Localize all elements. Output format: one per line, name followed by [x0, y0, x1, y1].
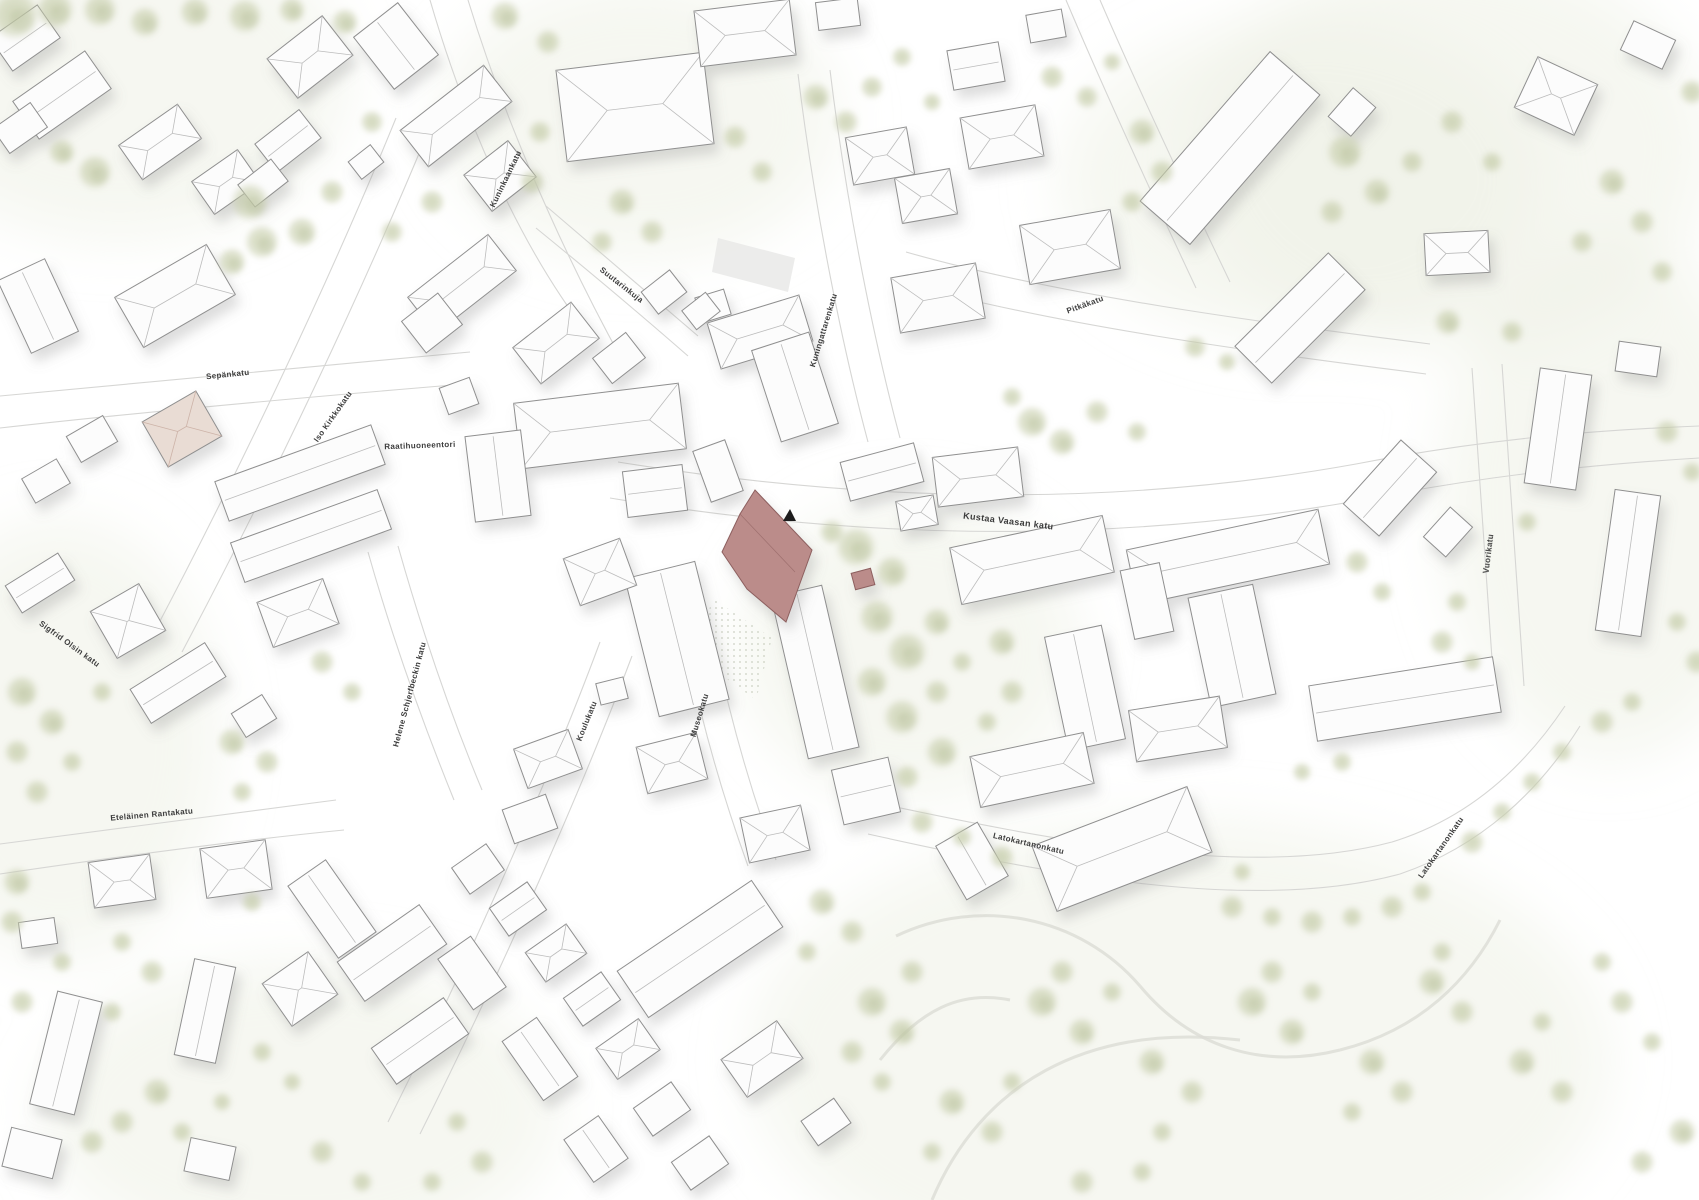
- tree: [1449, 999, 1475, 1025]
- tree: [1446, 591, 1468, 613]
- tree: [922, 92, 942, 112]
- tree-shade: [229, 738, 243, 752]
- tree: [894, 764, 920, 790]
- tree: [1500, 320, 1524, 344]
- building: [831, 757, 900, 825]
- tree: [1439, 109, 1465, 135]
- tree: [1654, 419, 1680, 445]
- tree: [1666, 611, 1688, 633]
- tree: [1049, 959, 1075, 985]
- tree: [1126, 421, 1148, 443]
- building: [932, 447, 1023, 507]
- tree: [0, 909, 25, 935]
- tree-shade: [1679, 1128, 1693, 1142]
- site-plan-map: SepänkatuIso KirkkokatuRaatihuoneentoriK…: [0, 0, 1699, 1200]
- tree-shade: [1519, 1058, 1533, 1072]
- building: [896, 495, 939, 531]
- tree: [231, 781, 253, 803]
- tree: [976, 711, 998, 733]
- tree: [860, 75, 884, 99]
- tree: [309, 1139, 335, 1165]
- tree: [1389, 1079, 1415, 1105]
- tree-shade: [96, 6, 112, 22]
- tree: [1491, 801, 1513, 823]
- tree: [519, 169, 545, 195]
- tree: [380, 220, 404, 244]
- tree: [1219, 894, 1245, 920]
- tree-shade: [246, 197, 264, 215]
- tree-shade: [934, 618, 948, 632]
- tree: [590, 230, 614, 254]
- tree-shade: [289, 7, 302, 20]
- tree: [1589, 709, 1615, 735]
- tree-shade: [342, 19, 355, 32]
- tree: [1261, 906, 1283, 928]
- tree: [1149, 159, 1175, 185]
- tree: [1102, 52, 1122, 72]
- building: [1026, 9, 1066, 43]
- tree: [839, 919, 865, 945]
- building-footprint: [1615, 341, 1661, 377]
- building: [556, 52, 714, 161]
- tree: [1379, 894, 1405, 920]
- tree: [139, 959, 165, 985]
- tree: [1301, 981, 1323, 1003]
- building: [200, 840, 272, 899]
- tree: [839, 1039, 865, 1065]
- tree: [1481, 151, 1503, 173]
- tree: [924, 679, 950, 705]
- tree: [9, 989, 35, 1015]
- tree: [1319, 199, 1345, 225]
- tree: [1341, 906, 1363, 928]
- tree-shade: [1079, 1028, 1093, 1042]
- tree-shade: [898, 712, 915, 729]
- tree: [212, 1092, 232, 1112]
- tree: [750, 160, 774, 184]
- tree-shade: [1429, 978, 1443, 992]
- tree: [871, 1071, 893, 1093]
- tree: [639, 219, 665, 245]
- tree: [1331, 751, 1353, 773]
- tree: [1459, 829, 1485, 855]
- tree: [1120, 190, 1144, 214]
- tree: [61, 751, 83, 773]
- tree: [528, 120, 552, 144]
- tree: [241, 891, 263, 913]
- tree: [79, 1129, 105, 1155]
- tree: [891, 46, 913, 68]
- tree-shade: [229, 258, 243, 272]
- tree: [1591, 951, 1613, 973]
- tree: [1531, 1011, 1553, 1033]
- site-plan-svg: SepänkatuIso KirkkokatuRaatihuoneentoriK…: [0, 0, 1699, 1200]
- tree-shade: [1039, 998, 1054, 1013]
- tree: [899, 959, 925, 985]
- tree-shade: [1289, 1028, 1303, 1042]
- tree: [1151, 1121, 1173, 1143]
- tree: [469, 1149, 495, 1175]
- tree-shade: [49, 718, 63, 732]
- tree: [1131, 1161, 1153, 1183]
- tree: [309, 649, 335, 675]
- tree-shade: [873, 612, 890, 629]
- tree: [833, 109, 859, 135]
- tree: [999, 679, 1025, 705]
- tree-shade: [1249, 998, 1264, 1013]
- building-footprint: [815, 0, 860, 30]
- tree-shade: [889, 568, 904, 583]
- tree: [1400, 150, 1424, 174]
- tree: [1341, 1101, 1363, 1123]
- tree-shade: [869, 678, 884, 693]
- tree: [51, 951, 73, 973]
- tree: [4, 739, 30, 765]
- tree: [1641, 1031, 1663, 1053]
- tree: [360, 110, 384, 134]
- tree-shade: [1029, 418, 1044, 433]
- tree: [419, 189, 445, 215]
- tree-shade: [949, 1098, 963, 1112]
- tree: [446, 1111, 468, 1133]
- tree: [1429, 629, 1455, 655]
- tree: [1621, 691, 1643, 713]
- tree: [1292, 762, 1312, 782]
- tree: [1259, 959, 1285, 985]
- tree: [989, 844, 1015, 870]
- tree: [979, 1119, 1005, 1145]
- building: [894, 168, 957, 223]
- tree-shade: [192, 8, 206, 22]
- building: [694, 0, 796, 67]
- tree: [254, 749, 280, 775]
- tree: [722, 124, 748, 150]
- tree-shade: [619, 198, 633, 212]
- tree: [819, 519, 845, 545]
- tree-shade: [1369, 1058, 1383, 1072]
- tree: [341, 681, 363, 703]
- tree: [1001, 386, 1023, 408]
- tree: [1629, 1149, 1655, 1175]
- tree-shade: [241, 12, 257, 28]
- tree: [1411, 881, 1433, 903]
- tree-shade: [51, 5, 69, 23]
- tree: [1650, 260, 1674, 284]
- tree-shade: [903, 647, 922, 666]
- tree-shade: [899, 1028, 913, 1042]
- tree-shade: [91, 168, 107, 184]
- tree: [1570, 230, 1594, 254]
- tree-shade: [1445, 319, 1458, 332]
- building: [1424, 230, 1490, 275]
- tree: [1609, 989, 1635, 1015]
- tree-shade: [154, 1088, 168, 1102]
- tree: [951, 826, 973, 848]
- tree: [1075, 85, 1099, 109]
- building-footprint: [1026, 9, 1066, 43]
- tree: [1183, 335, 1207, 359]
- tree-shade: [14, 878, 28, 892]
- tree: [91, 681, 113, 703]
- building: [88, 854, 156, 908]
- tree-shade: [819, 898, 833, 912]
- tree: [1039, 64, 1065, 90]
- tree-shade: [1059, 438, 1073, 452]
- tree: [1084, 399, 1110, 425]
- tree-shade: [999, 638, 1013, 652]
- tree: [1629, 209, 1655, 235]
- tree: [1371, 581, 1393, 603]
- tree: [24, 779, 50, 805]
- tree: [1462, 652, 1482, 672]
- tree: [1551, 741, 1573, 763]
- tree-shade: [299, 228, 313, 242]
- tree-shade: [1139, 128, 1153, 142]
- building: [947, 42, 1005, 90]
- tree-shade: [19, 688, 34, 703]
- tree-shade: [502, 12, 516, 26]
- tree-shade: [939, 748, 954, 763]
- tree-shade: [869, 998, 884, 1013]
- tree: [1299, 909, 1325, 935]
- tree: [1344, 549, 1370, 575]
- tree: [1232, 862, 1252, 882]
- tree-shade: [258, 238, 274, 254]
- tree-shade: [59, 149, 72, 162]
- building: [1615, 341, 1661, 377]
- tree: [1431, 941, 1453, 963]
- tree: [1516, 511, 1538, 533]
- tree-shade: [1374, 188, 1388, 202]
- tree: [921, 1141, 943, 1163]
- tree: [109, 1109, 135, 1135]
- tree: [319, 179, 345, 205]
- tree: [1549, 1079, 1575, 1105]
- tree: [1179, 1079, 1205, 1105]
- tree: [101, 1001, 123, 1023]
- tree: [1001, 1071, 1023, 1093]
- building: [622, 465, 687, 518]
- building: [465, 430, 531, 522]
- tree-shade: [1341, 147, 1358, 164]
- tree-shade: [142, 18, 156, 32]
- tree-shade: [10, 9, 33, 32]
- tree: [796, 941, 818, 963]
- tree: [1101, 981, 1123, 1003]
- tree-shade: [852, 542, 871, 561]
- tree: [351, 1171, 373, 1193]
- tree-shade: [1149, 1058, 1163, 1072]
- tree: [251, 1041, 273, 1063]
- tree: [111, 931, 133, 953]
- tree: [1521, 771, 1543, 793]
- tree-shade: [1609, 178, 1623, 192]
- tree: [282, 1072, 302, 1092]
- building: [815, 0, 860, 30]
- tree: [535, 29, 561, 55]
- tree: [1069, 1169, 1095, 1195]
- tree-shade: [813, 93, 827, 107]
- tree: [909, 809, 935, 835]
- tree: [421, 1171, 443, 1193]
- tree: [951, 651, 973, 673]
- tree: [171, 1121, 193, 1143]
- tree: [1217, 352, 1237, 372]
